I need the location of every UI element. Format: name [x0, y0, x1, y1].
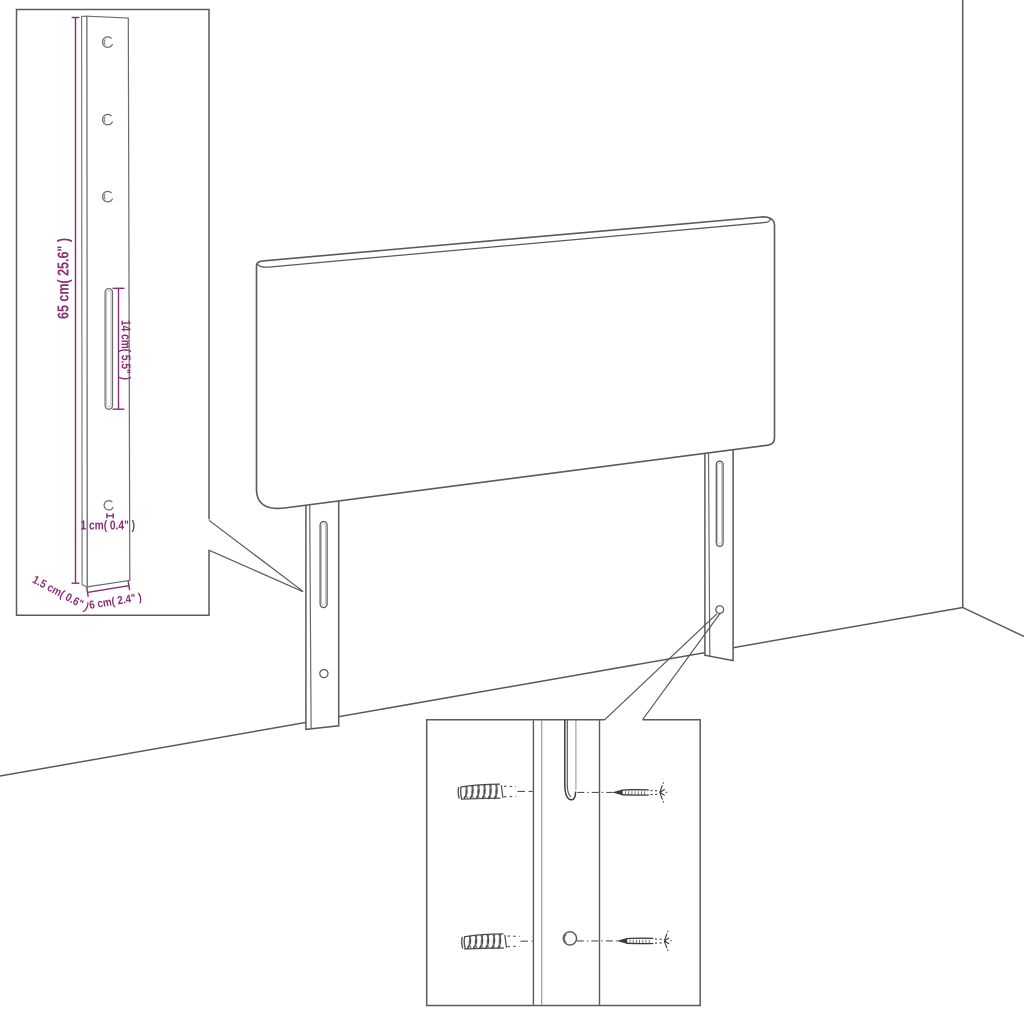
svg-text:1 cm( 0.4" ): 1 cm( 0.4" )	[81, 518, 136, 532]
svg-text:14 cm( 5.5" ): 14 cm( 5.5" )	[118, 320, 133, 380]
svg-text:65 cm( 25.6" ): 65 cm( 25.6" )	[55, 238, 72, 319]
